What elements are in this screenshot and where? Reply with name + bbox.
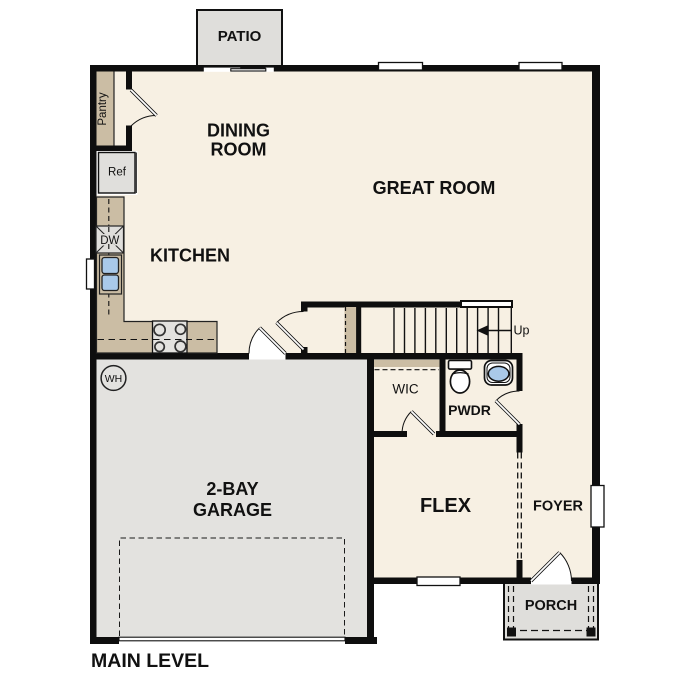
svg-text:MAIN LEVEL: MAIN LEVEL bbox=[91, 650, 209, 672]
svg-text:WIC: WIC bbox=[392, 382, 418, 397]
svg-text:PWDR: PWDR bbox=[448, 402, 491, 418]
svg-text:DINING: DINING bbox=[207, 121, 270, 141]
svg-text:GARAGE: GARAGE bbox=[193, 500, 272, 520]
svg-text:2-BAY: 2-BAY bbox=[206, 479, 258, 499]
svg-text:GREAT ROOM: GREAT ROOM bbox=[373, 178, 496, 198]
svg-text:Pantry: Pantry bbox=[97, 92, 109, 125]
svg-text:PORCH: PORCH bbox=[525, 598, 577, 614]
svg-text:PATIO: PATIO bbox=[218, 28, 262, 45]
svg-text:FLEX: FLEX bbox=[420, 495, 472, 517]
svg-text:Ref: Ref bbox=[108, 167, 127, 179]
svg-text:ROOM: ROOM bbox=[211, 140, 267, 160]
svg-text:Up: Up bbox=[514, 324, 530, 338]
svg-text:FOYER: FOYER bbox=[533, 499, 583, 515]
svg-text:WH: WH bbox=[105, 373, 123, 385]
svg-text:KITCHEN: KITCHEN bbox=[150, 246, 230, 266]
svg-text:DW: DW bbox=[100, 235, 119, 247]
